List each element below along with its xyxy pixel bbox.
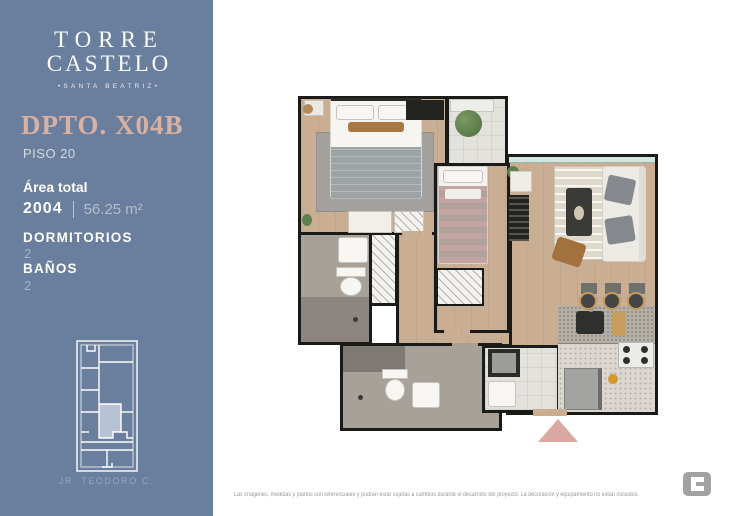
bathroom2-toilet — [382, 369, 408, 403]
bedrooms-label: DORMITORIOS — [23, 230, 133, 245]
burner — [623, 346, 630, 353]
unit-stats: 2004 56.25 m² — [23, 200, 143, 218]
bar-stool — [579, 283, 599, 313]
media-shelf — [509, 195, 529, 241]
bed2-throw — [445, 189, 481, 199]
teddy-bear — [303, 104, 313, 114]
brand-logo: TORRE CASTELO •SANTA BEATRIZ• — [14, 28, 204, 90]
door-opening — [444, 329, 470, 336]
balcony-plant — [455, 110, 482, 137]
coffee-table — [566, 188, 592, 236]
entrance-marker — [538, 419, 578, 442]
bar-stool — [603, 283, 623, 313]
bedroom1-console — [406, 100, 444, 120]
toilet-bowl — [340, 277, 362, 296]
burner — [641, 357, 648, 364]
stool-seat — [579, 292, 597, 310]
keyplan-highlighted-unit — [99, 404, 121, 438]
bathroom1-toilet — [336, 267, 366, 297]
sofa-pillow — [604, 174, 637, 205]
closet-hall — [369, 232, 398, 306]
bed-pillow — [443, 170, 483, 183]
unit-floor: PISO 20 — [23, 146, 76, 161]
area-value: 56.25 m² — [84, 201, 143, 218]
developer-logo-icon — [682, 471, 712, 497]
keyplan-street-label: JR. TEODORO C. — [0, 476, 213, 486]
bedrooms-value: 2 — [24, 246, 31, 261]
unit-title: DPTO. X04B — [21, 110, 184, 141]
burner — [641, 346, 648, 353]
brand-subtitle: •SANTA BEATRIZ• — [14, 83, 204, 90]
burner — [623, 357, 630, 364]
table-decor — [574, 206, 584, 220]
washing-machine — [488, 349, 520, 377]
bedroom2-closet — [436, 268, 484, 306]
developer-logo — [682, 471, 712, 502]
brand-name-line2: CASTELO — [14, 52, 204, 76]
refrigerator — [564, 368, 602, 410]
fruit-bowl — [608, 374, 618, 384]
kitchen-sink — [576, 311, 604, 334]
unit-number: 2004 — [23, 200, 63, 218]
toilet-bowl — [385, 379, 405, 401]
bathroom1-shower — [301, 297, 369, 342]
bathrooms-label: BAÑOS — [23, 261, 78, 276]
sofa — [602, 166, 646, 262]
washer-door — [492, 353, 516, 373]
info-sidebar: TORRE CASTELO •SANTA BEATRIZ• DPTO. X04B… — [0, 0, 213, 516]
door-opening — [452, 343, 478, 349]
entrance-opening — [533, 409, 567, 416]
cutting-board — [612, 312, 626, 336]
area-total-label: Área total — [23, 179, 88, 195]
shower-drain — [353, 317, 358, 322]
bathroom1-sink — [338, 237, 368, 263]
stats-divider — [73, 201, 74, 218]
bar-stool — [627, 283, 647, 313]
bedroom1-plant — [302, 214, 312, 226]
bathrooms-value: 2 — [24, 278, 31, 293]
stove — [618, 342, 654, 368]
stool-seat — [603, 292, 621, 310]
dining-table — [510, 171, 532, 192]
toilet-tank — [336, 267, 366, 277]
building-keyplan-diagram — [74, 338, 140, 474]
sofa-pillow — [604, 215, 636, 245]
brand-name-line1: TORRE — [14, 28, 204, 52]
stool-seat — [627, 292, 645, 310]
bed-accent-pillow — [348, 122, 404, 132]
shower-drain — [358, 395, 363, 400]
bed-blanket — [331, 147, 421, 199]
bedroom2-bed — [438, 166, 488, 264]
laundry-sink — [488, 381, 516, 407]
living-window — [509, 157, 655, 163]
door-opening — [402, 231, 432, 238]
toilet-tank — [382, 369, 408, 379]
bathroom2-sink — [412, 382, 440, 408]
disclaimer-text: Las imágenes, medidas y planos son refer… — [234, 492, 639, 498]
bedroom1-dresser — [348, 211, 392, 233]
bedroom1-cabinet — [394, 211, 424, 233]
bed-pillow — [336, 105, 374, 120]
